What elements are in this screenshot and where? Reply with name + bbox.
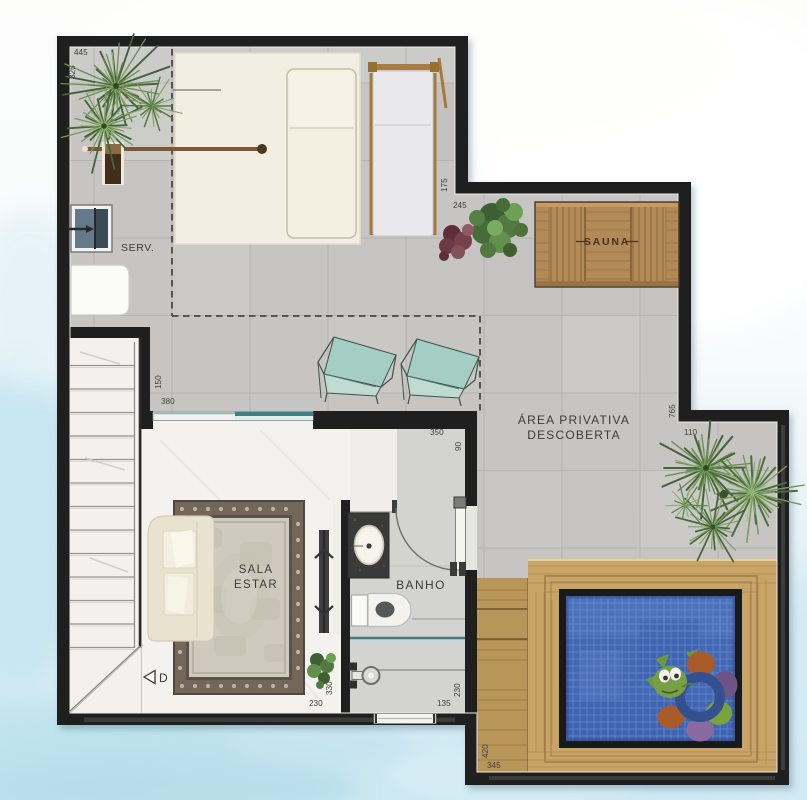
svg-text:BANHO: BANHO <box>396 578 446 592</box>
svg-text:345: 345 <box>487 761 501 770</box>
svg-text:SAUNA: SAUNA <box>584 236 630 248</box>
svg-text:245: 245 <box>453 201 467 210</box>
svg-text:230: 230 <box>453 683 462 697</box>
svg-text:D: D <box>159 671 168 685</box>
svg-text:765: 765 <box>668 404 677 418</box>
svg-text:DESCOBERTA: DESCOBERTA <box>527 428 621 442</box>
svg-text:135: 135 <box>437 699 451 708</box>
svg-text:175: 175 <box>440 178 449 192</box>
svg-text:SERV.: SERV. <box>121 242 154 254</box>
svg-text:445: 445 <box>74 48 88 57</box>
svg-text:ÁREA PRIVATIVA: ÁREA PRIVATIVA <box>518 412 630 427</box>
svg-text:150: 150 <box>154 375 163 389</box>
svg-text:330: 330 <box>325 681 334 695</box>
svg-text:380: 380 <box>161 397 175 406</box>
svg-text:420: 420 <box>481 744 490 758</box>
svg-text:SALA: SALA <box>239 564 274 576</box>
svg-text:ESTAR: ESTAR <box>234 579 278 591</box>
svg-text:350: 350 <box>430 428 444 437</box>
svg-text:110: 110 <box>684 428 697 437</box>
svg-text:90: 90 <box>454 441 463 451</box>
svg-text:230: 230 <box>309 699 323 708</box>
svg-text:325: 325 <box>68 65 77 79</box>
